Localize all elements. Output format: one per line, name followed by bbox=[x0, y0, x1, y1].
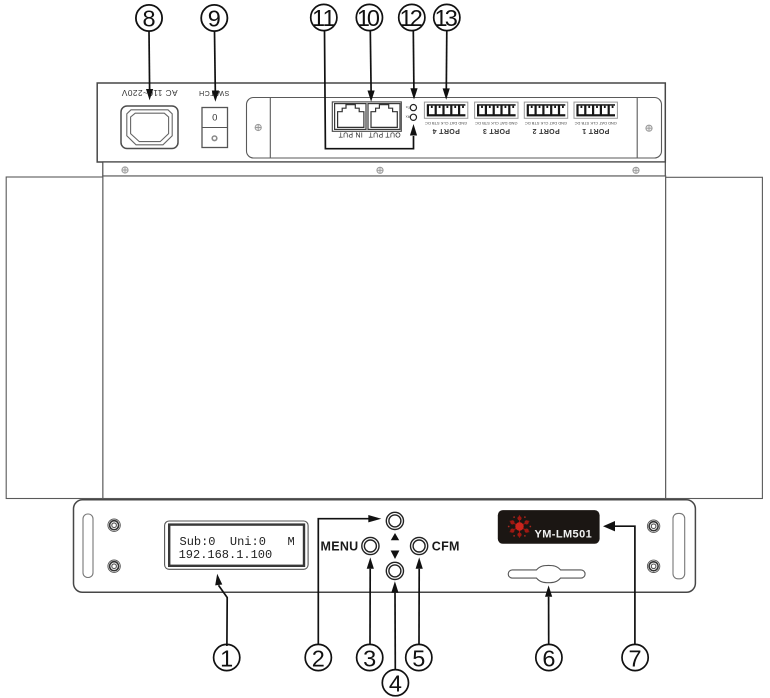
svg-text:2: 2 bbox=[410, 5, 423, 31]
svg-text:2: 2 bbox=[312, 645, 325, 671]
svg-text:YM-LM501: YM-LM501 bbox=[535, 528, 593, 540]
svg-text:1: 1 bbox=[220, 645, 233, 671]
svg-text:CFM: CFM bbox=[432, 539, 460, 553]
svg-text:GND DAT CLK STB DC: GND DAT CLK STB DC bbox=[525, 121, 567, 126]
svg-text:4: 4 bbox=[389, 671, 402, 697]
svg-text:MENU: MENU bbox=[320, 539, 358, 553]
svg-text:3: 3 bbox=[445, 5, 458, 31]
svg-text:GND DAT CLK STB DC: GND DAT CLK STB DC bbox=[425, 121, 467, 126]
svg-text:1: 1 bbox=[322, 5, 335, 31]
svg-text:PORT 2: PORT 2 bbox=[532, 127, 559, 135]
svg-text:Tx: Tx bbox=[406, 105, 410, 110]
svg-text:192.168.1.100: 192.168.1.100 bbox=[179, 548, 273, 562]
svg-text:PORT 4: PORT 4 bbox=[432, 127, 459, 135]
svg-text:Sub:0 Uni:0 M: Sub:0 Uni:0 M bbox=[180, 535, 295, 549]
svg-text:3: 3 bbox=[363, 645, 376, 671]
svg-text:PORT 3: PORT 3 bbox=[483, 127, 510, 135]
svg-text:0: 0 bbox=[367, 5, 380, 31]
svg-text:6: 6 bbox=[542, 645, 555, 671]
svg-text:0: 0 bbox=[212, 112, 217, 123]
svg-text:GND DAT CLK STB DC: GND DAT CLK STB DC bbox=[475, 121, 517, 126]
svg-text:GND DAT CLK STB DC: GND DAT CLK STB DC bbox=[574, 121, 616, 126]
svg-text:PORT 1: PORT 1 bbox=[582, 127, 609, 135]
svg-text:OUT PUT: OUT PUT bbox=[368, 131, 401, 138]
svg-text:IN PUT: IN PUT bbox=[338, 131, 363, 138]
svg-text:9: 9 bbox=[208, 6, 221, 32]
svg-text:7: 7 bbox=[629, 645, 642, 671]
svg-text:5: 5 bbox=[412, 645, 425, 671]
svg-text:8: 8 bbox=[142, 6, 155, 32]
